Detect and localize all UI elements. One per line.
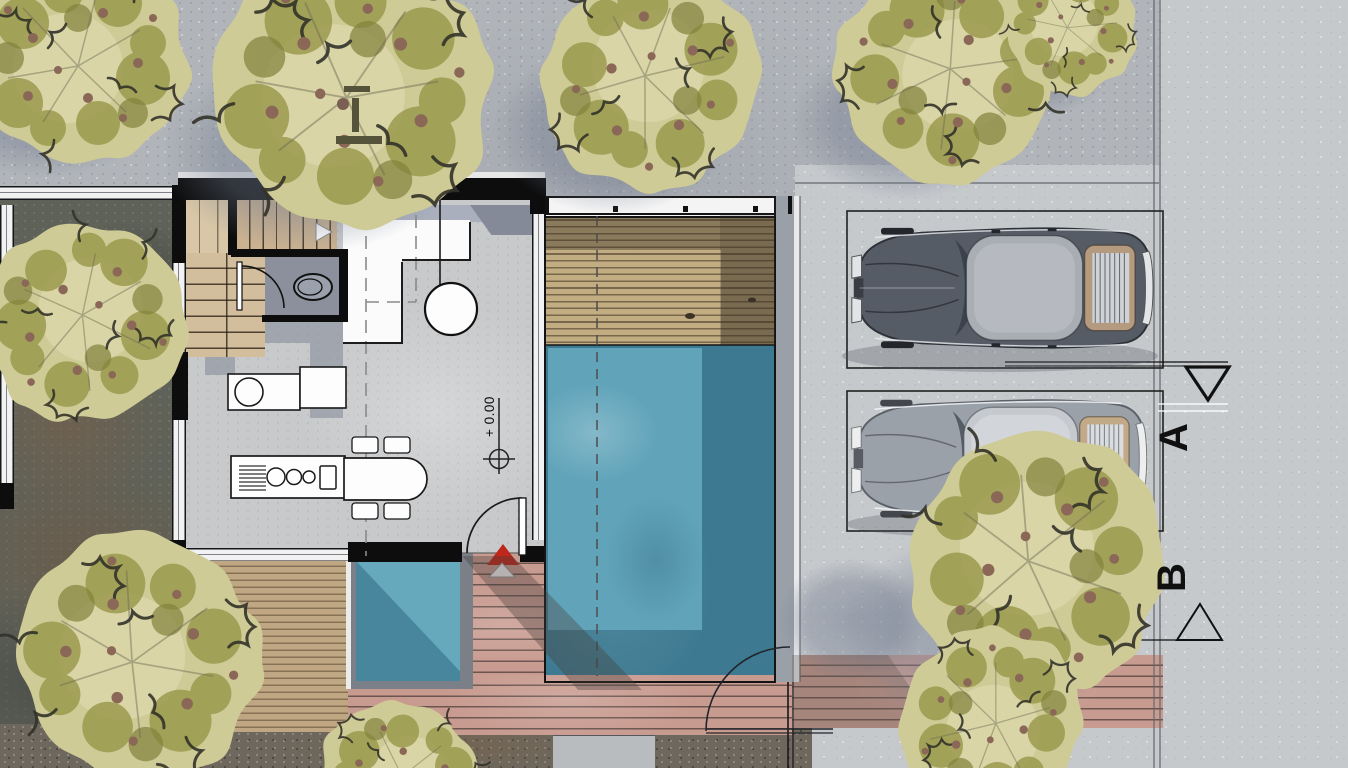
- round-table: [425, 283, 477, 335]
- site-plan: + 0.00 A B: [0, 0, 1348, 768]
- grill-hatch: [239, 466, 266, 490]
- car-1: [852, 228, 1153, 349]
- section-b-label: B: [1150, 563, 1195, 592]
- bathroom-door: [237, 262, 284, 310]
- entry-door: [462, 498, 526, 555]
- section-a-label: A: [1152, 423, 1197, 452]
- linework-overlay: [0, 0, 1348, 768]
- toilet: [294, 274, 332, 300]
- desk: [228, 367, 346, 410]
- dining-table: [344, 437, 427, 519]
- kitchen-island: [231, 456, 345, 498]
- level-marker-label: + 0.00: [482, 396, 497, 437]
